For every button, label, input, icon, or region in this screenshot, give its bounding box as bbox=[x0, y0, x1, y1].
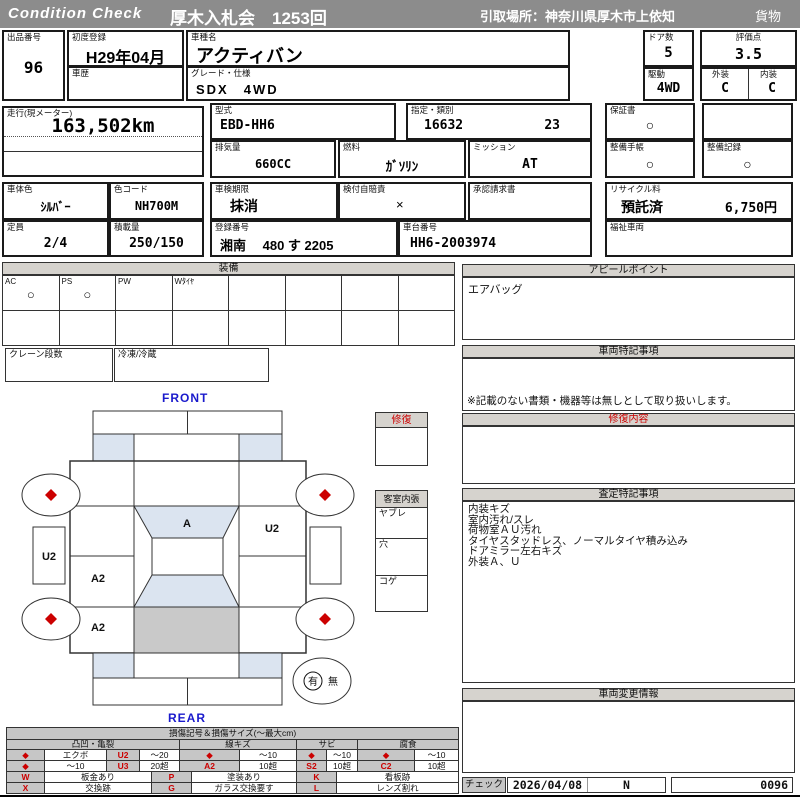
lot-number-label: 出品番号 bbox=[7, 33, 41, 42]
code-cell: 交換跡 bbox=[45, 783, 152, 794]
damage-legend-table: 損傷記号＆損傷サイズ(～最大cm) 凸凹・亀裂 線キズ サビ 腐食 ◆ エクボ … bbox=[6, 727, 459, 772]
type-class-box: 指定・類別 16632 23 bbox=[406, 103, 592, 140]
legend-symbol: U3 bbox=[107, 761, 140, 772]
rear-corner-glass-right bbox=[239, 653, 282, 678]
roof bbox=[152, 538, 223, 575]
service-record-mark: ○ bbox=[704, 156, 791, 172]
welfare-box: 福祉車両 bbox=[605, 220, 793, 257]
appeal-content: エアバッグ bbox=[463, 278, 794, 297]
equip-label: PW bbox=[116, 276, 172, 286]
code-cell: 看板跡 bbox=[337, 772, 459, 783]
history-label: 車歴 bbox=[72, 69, 89, 78]
interior-value: C bbox=[749, 81, 795, 96]
equipment-cell-empty bbox=[285, 311, 342, 346]
legend-cell: ～10 bbox=[415, 750, 459, 761]
history-box: 車歴 bbox=[67, 67, 184, 101]
registration-number-box: 登録番号 湘南 480 す 2205 bbox=[210, 220, 398, 257]
assessment-line: 外装Ａ、Ｕ bbox=[468, 557, 794, 568]
model-code-box: 型式 EBD-HH6 bbox=[210, 103, 396, 140]
pickup-location: 引取場所：神奈川県厚木市上依知 bbox=[480, 6, 675, 25]
equipment-cell-empty bbox=[398, 276, 455, 311]
check-mark: N bbox=[588, 778, 665, 792]
grade-label: グレード・仕様 bbox=[191, 69, 251, 78]
damage-code-left-center: A2 bbox=[91, 573, 105, 585]
fuel-box: 燃料 ｶﾞｿﾘﾝ bbox=[338, 140, 466, 178]
code-row: W 板金あり P 塗装あり K 看板跡 bbox=[7, 772, 459, 783]
chassis-number-box: 車台番号 HH6-2003974 bbox=[398, 220, 592, 257]
lot-number-box: 出品番号 96 bbox=[2, 30, 65, 101]
color-code-label: 色コード bbox=[114, 185, 148, 194]
repair-content-header: 修復内容 bbox=[462, 413, 795, 426]
check-date-box: 2026/04/08 N bbox=[507, 777, 666, 793]
legend-group-row: 凸凹・亀裂 線キズ サビ 腐食 bbox=[7, 740, 459, 750]
check-date: 2026/04/08 bbox=[508, 778, 587, 792]
appeal-title: アピールポイント bbox=[589, 265, 669, 276]
legend-symbol: ◆ bbox=[7, 761, 45, 772]
legend-symbol: U2 bbox=[107, 750, 140, 761]
cabin-row-hole: 穴 bbox=[375, 538, 428, 576]
legend-group: 腐食 bbox=[358, 740, 459, 750]
repair-code-table: W 板金あり P 塗装あり K 看板跡 X 交換跡 G ガラス交換要す L レン… bbox=[6, 771, 459, 794]
code-cell: ガラス交換要す bbox=[192, 783, 297, 794]
spare-yes-label: 有 bbox=[308, 675, 318, 688]
exterior-label: 外装 bbox=[712, 70, 729, 79]
recycle-amount: 6,750円 bbox=[607, 197, 791, 216]
color-code-box: 色コード NH700M bbox=[109, 182, 204, 220]
warranty-label: 保証書 bbox=[610, 106, 636, 115]
equipment-cell-empty bbox=[229, 311, 286, 346]
warranty-box: 保証書 ○ bbox=[605, 103, 695, 140]
auction-condition-sheet: Condition Check 厚木入札会 1253回 引取場所：神奈川県厚木市… bbox=[0, 0, 800, 800]
chassis-number-label: 車台番号 bbox=[403, 223, 437, 232]
legend-symbol: ◆ bbox=[297, 750, 327, 761]
code-cell: レンズ割れ bbox=[337, 783, 459, 794]
code-symbol: P bbox=[152, 772, 192, 783]
payload-value: 250/150 bbox=[111, 236, 202, 251]
code-symbol: L bbox=[297, 783, 337, 794]
legend-cell: ～10 bbox=[327, 750, 358, 761]
legend-cell: ～20 bbox=[140, 750, 180, 761]
capacity-box: 定員 2/4 bbox=[2, 220, 109, 257]
equipment-cell-empty bbox=[398, 311, 455, 346]
code-cell: 板金あり bbox=[45, 772, 152, 783]
rear-corner-glass-left bbox=[93, 653, 134, 678]
grade-box: グレード・仕様 SDX 4WD bbox=[186, 67, 570, 101]
registration-number-label: 登録番号 bbox=[215, 223, 249, 232]
code-row: X 交換跡 G ガラス交換要す L レンズ割れ bbox=[7, 783, 459, 794]
first-registration-value: H29年04月 bbox=[69, 44, 182, 68]
service-book-box: 整備手帳 ○ bbox=[605, 140, 695, 178]
legend-cell: ～10 bbox=[45, 761, 107, 772]
equipment-table: AC○ PS○ PW Wﾀｲﾔ bbox=[2, 275, 455, 346]
code-cell: 塗装あり bbox=[192, 772, 297, 783]
mileage-box: 走行(現メーター) 163,502km bbox=[2, 106, 204, 177]
cabin-item-label: コゲ bbox=[379, 577, 397, 586]
equipment-cell-empty bbox=[59, 311, 116, 346]
legend-symbol: ◆ bbox=[180, 750, 240, 761]
fuel-label: 燃料 bbox=[343, 143, 360, 152]
model-name-value: アクティバン bbox=[188, 42, 568, 68]
score-box: 評価点 3.5 bbox=[700, 30, 797, 67]
repair-content-title: 修復内容 bbox=[609, 414, 649, 425]
grade-value: SDX 4WD bbox=[188, 79, 568, 98]
equipment-cell-empty bbox=[3, 311, 60, 346]
legend-row: ◆ ～10 U3 20超 A2 10超 S2 10超 C2 10超 bbox=[7, 761, 459, 772]
drive-value: 4WD bbox=[645, 81, 692, 96]
doors-box: ドア数 5 bbox=[643, 30, 694, 67]
equip-label: AC bbox=[3, 276, 59, 286]
legend-symbol: ◆ bbox=[7, 750, 45, 761]
payload-box: 積載量 250/150 bbox=[109, 220, 204, 257]
assessment-header: 査定特記事項 bbox=[462, 488, 795, 501]
equipment-cell-empty bbox=[172, 311, 229, 346]
cabin-row-burn: コゲ bbox=[375, 575, 428, 612]
repair-content-body bbox=[462, 426, 795, 484]
service-book-label: 整備手帳 bbox=[610, 143, 644, 152]
legend-cell: 10超 bbox=[415, 761, 459, 772]
capacity-value: 2/4 bbox=[4, 236, 107, 251]
front-corner-glass-left bbox=[93, 434, 134, 461]
reefer-box: 冷凍/冷蔵 bbox=[114, 348, 269, 382]
transmission-box: ミッション AT bbox=[468, 140, 592, 178]
check-label: チェック bbox=[465, 779, 503, 790]
exterior-interior-box: 外装 C 内装 C bbox=[700, 67, 797, 101]
model-name-label: 車種名 bbox=[191, 33, 217, 42]
insurance-label: 検付自賠責 bbox=[343, 185, 386, 194]
crane-label: クレーン段数 bbox=[9, 350, 63, 359]
equipment-cell-empty bbox=[342, 276, 399, 311]
code-symbol: G bbox=[152, 783, 192, 794]
equipment-cell-ac: AC○ bbox=[3, 276, 60, 311]
equip-mark: ○ bbox=[60, 287, 116, 302]
special-notes-body: ※記載のない書類・機器等は無しとして取り扱いします。 bbox=[462, 358, 795, 411]
code-symbol: X bbox=[7, 783, 45, 794]
check-number: 0096 bbox=[760, 778, 788, 792]
rear-window bbox=[134, 575, 239, 607]
drive-box: 駆動 4WD bbox=[643, 67, 694, 101]
assessment-line: 内装キズ bbox=[468, 504, 794, 515]
inspection-value: 抹消 bbox=[212, 196, 336, 216]
approval-box: 承認請求書 bbox=[468, 182, 592, 220]
check-label-cell: チェック bbox=[462, 777, 506, 793]
top-header-bar: Condition Check 厚木入札会 1253回 引取場所：神奈川県厚木市… bbox=[0, 0, 800, 28]
equipment-cell-pw: PW bbox=[116, 276, 173, 311]
damage-code-windshield: A bbox=[183, 518, 191, 530]
service-book-mark: ○ bbox=[607, 156, 693, 172]
transmission-value: AT bbox=[470, 157, 590, 172]
damage-code-right-door: U2 bbox=[265, 523, 279, 535]
body-color-label: 車体色 bbox=[7, 185, 33, 194]
color-code-value: NH700M bbox=[111, 199, 202, 213]
legend-title: 損傷記号＆損傷サイズ(～最大cm) bbox=[7, 728, 459, 740]
legend-cell: エクボ bbox=[45, 750, 107, 761]
cabin-row-tear: ヤブレ bbox=[375, 508, 428, 539]
exterior-value: C bbox=[702, 81, 748, 96]
score-label: 評価点 bbox=[702, 33, 795, 42]
change-info-title: 車両変更情報 bbox=[599, 689, 659, 700]
divider bbox=[4, 136, 202, 137]
repair-mini-title: 修復 bbox=[392, 415, 412, 426]
legend-symbol: ◆ bbox=[358, 750, 415, 761]
lot-number-value: 96 bbox=[4, 58, 63, 77]
special-notes-footnote: ※記載のない書類・機器等は無しとして取り扱いします。 bbox=[467, 393, 737, 408]
registration-number-value: 湘南 480 す 2205 bbox=[212, 235, 396, 254]
displacement-box: 排気量 660CC bbox=[210, 140, 336, 178]
inspection-label: 車検期限 bbox=[215, 185, 249, 194]
empty-box bbox=[702, 103, 793, 140]
legend-group: サビ bbox=[297, 740, 358, 750]
legend-row: ◆ エクボ U2 ～20 ◆ ～10 ◆ ～10 ◆ ～10 bbox=[7, 750, 459, 761]
legend-cell: 10超 bbox=[240, 761, 297, 772]
fuel-value: ｶﾞｿﾘﾝ bbox=[340, 156, 464, 175]
check-number-box: 0096 bbox=[671, 777, 793, 793]
assessment-title: 査定特記事項 bbox=[599, 489, 659, 500]
service-record-label: 整備記録 bbox=[707, 143, 741, 152]
assessment-body: 内装キズ 室内汚れ/スレ 荷物室ＡＵ汚れ タイヤスタッドレス、ノーマルタイヤ積み… bbox=[462, 501, 795, 683]
bottom-rule bbox=[0, 795, 800, 797]
payload-label: 積載量 bbox=[114, 223, 140, 232]
doors-label: ドア数 bbox=[648, 33, 674, 42]
equipment-row-2 bbox=[3, 311, 455, 346]
recycle-fee-box: リサイクル料 預託済 6,750円 bbox=[605, 182, 793, 220]
repair-mini-body bbox=[375, 428, 428, 466]
approval-label: 承認請求書 bbox=[473, 185, 516, 194]
cabin-header: 客室内張 bbox=[375, 490, 428, 508]
special-notes-header: 車両特記事項 bbox=[462, 345, 795, 358]
service-record-box: 整備記録 ○ bbox=[702, 140, 793, 178]
inspection-box: 車検期限 抹消 bbox=[210, 182, 338, 220]
equipment-cell-empty bbox=[285, 276, 342, 311]
auction-title: 厚木入札会 1253回 bbox=[170, 4, 327, 29]
legend-group: 凸凹・亀裂 bbox=[7, 740, 180, 750]
damage-code-left-rear: A2 bbox=[91, 622, 105, 634]
equipment-cell-empty bbox=[229, 276, 286, 311]
body-color-box: 車体色 ｼﾙﾊﾞｰ bbox=[2, 182, 109, 220]
type-class-label: 指定・類別 bbox=[411, 106, 454, 115]
mileage-value: 163,502km bbox=[4, 115, 202, 137]
spare-no-label: 無 bbox=[328, 675, 338, 688]
cabin-title: 客室内張 bbox=[383, 494, 419, 504]
appeal-header: アピールポイント bbox=[462, 264, 795, 277]
code-symbol: W bbox=[7, 772, 45, 783]
interior-label: 内装 bbox=[760, 70, 777, 79]
crane-box: クレーン段数 bbox=[5, 348, 113, 382]
class-number-value: 23 bbox=[408, 118, 590, 133]
equipment-cell-empty bbox=[342, 311, 399, 346]
drive-label: 駆動 bbox=[648, 70, 665, 79]
legend-symbol: C2 bbox=[358, 761, 415, 772]
model-code-value: EBD-HH6 bbox=[212, 118, 394, 133]
legend-cell: 10超 bbox=[327, 761, 358, 772]
chassis-number-value: HH6-2003974 bbox=[400, 236, 590, 251]
body-color-value: ｼﾙﾊﾞｰ bbox=[4, 198, 107, 215]
model-name-box: 車種名 アクティバン bbox=[186, 30, 570, 67]
legend-group: 線キズ bbox=[180, 740, 297, 750]
doors-value: 5 bbox=[645, 45, 692, 61]
equipment-cell-ps: PS○ bbox=[59, 276, 116, 311]
appeal-body: エアバッグ bbox=[462, 277, 795, 340]
code-symbol: K bbox=[297, 772, 337, 783]
rear-roof-panel bbox=[134, 607, 239, 653]
category-label: 貨物 bbox=[755, 6, 781, 25]
reefer-label: 冷凍/冷蔵 bbox=[118, 350, 157, 359]
damage-code-left-trim: U2 bbox=[42, 551, 56, 563]
equip-label: PS bbox=[60, 276, 116, 286]
insurance-box: 検付自賠責 × bbox=[338, 182, 466, 220]
score-value: 3.5 bbox=[702, 45, 795, 63]
legend-symbol: A2 bbox=[180, 761, 240, 772]
cabin-item-label: ヤブレ bbox=[379, 509, 406, 518]
transmission-label: ミッション bbox=[473, 143, 516, 152]
recycle-fee-label: リサイクル料 bbox=[610, 185, 661, 194]
right-side-trim bbox=[310, 527, 341, 584]
repair-mini-header: 修復 bbox=[375, 412, 428, 428]
legend-cell: ～10 bbox=[240, 750, 297, 761]
equipment-cell-wtire: Wﾀｲﾔ bbox=[172, 276, 229, 311]
welfare-label: 福祉車両 bbox=[610, 223, 644, 232]
special-notes-title: 車両特記事項 bbox=[599, 346, 659, 357]
equipment-header: 装備 bbox=[2, 262, 455, 275]
legend-cell: 20超 bbox=[140, 761, 180, 772]
equip-mark: ○ bbox=[3, 287, 59, 302]
divider bbox=[4, 151, 202, 152]
brand-logo: Condition Check bbox=[8, 5, 142, 22]
warranty-mark: ○ bbox=[607, 117, 693, 133]
equipment-row-1: AC○ PS○ PW Wﾀｲﾔ bbox=[3, 276, 455, 311]
displacement-label: 排気量 bbox=[215, 143, 241, 152]
change-info-header: 車両変更情報 bbox=[462, 688, 795, 701]
displacement-value: 660CC bbox=[212, 157, 334, 171]
model-code-label: 型式 bbox=[215, 106, 232, 115]
equipment-cell-empty bbox=[116, 311, 173, 346]
equip-label: Wﾀｲﾔ bbox=[173, 276, 229, 286]
insurance-mark: × bbox=[340, 197, 464, 212]
front-corner-glass-right bbox=[239, 434, 282, 461]
change-info-body bbox=[462, 701, 795, 773]
first-registration-label: 初度登録 bbox=[72, 33, 106, 42]
first-registration-box: 初度登録 H29年04月 bbox=[67, 30, 184, 67]
legend-symbol: S2 bbox=[297, 761, 327, 772]
equipment-title: 装備 bbox=[219, 263, 239, 274]
capacity-label: 定員 bbox=[7, 223, 24, 232]
cabin-item-label: 穴 bbox=[379, 540, 388, 549]
